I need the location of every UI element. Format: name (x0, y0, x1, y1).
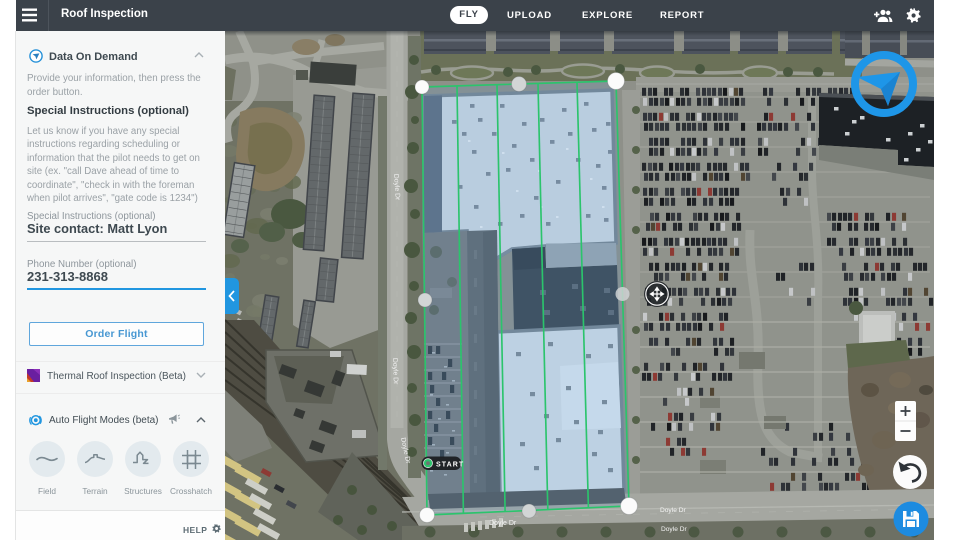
svg-text:Doyle Dr: Doyle Dr (391, 358, 399, 385)
svg-text:START: START (436, 462, 464, 469)
svg-text:Doyle Dr: Doyle Dr (661, 526, 687, 533)
svg-text:Doyle Dr: Doyle Dr (660, 507, 686, 514)
svg-text:Doyle Dr: Doyle Dr (489, 520, 517, 527)
